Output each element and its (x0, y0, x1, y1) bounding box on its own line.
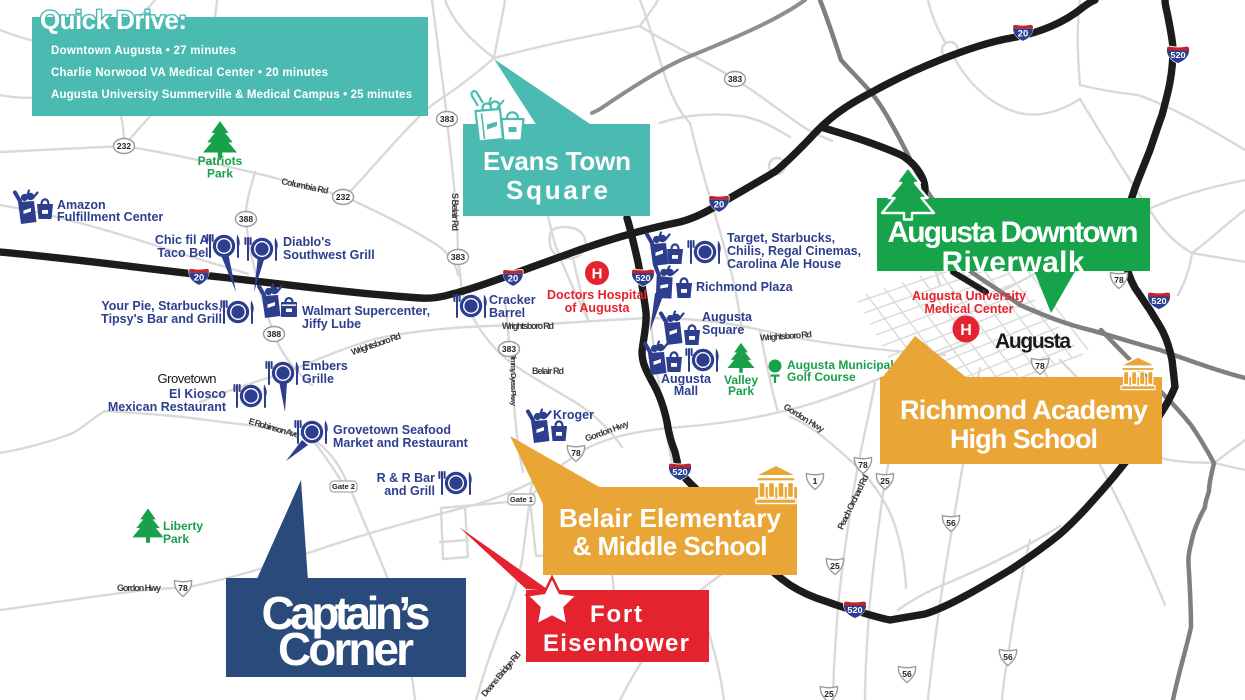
svg-text:Fulfillment Center: Fulfillment Center (57, 210, 163, 224)
svg-text:Doctors Hospital: Doctors Hospital (547, 288, 647, 302)
svg-text:Embers: Embers (302, 359, 348, 373)
svg-text:Richmond Academy: Richmond Academy (900, 395, 1148, 425)
svg-text:78: 78 (571, 448, 581, 458)
svg-text:Chic fil A,: Chic fil A, (155, 233, 212, 247)
svg-text:78: 78 (1035, 361, 1045, 371)
svg-text:Augusta: Augusta (702, 310, 753, 324)
svg-text:El Kiosco: El Kiosco (169, 387, 226, 401)
svg-text:Wrightsboro Rd: Wrightsboro Rd (502, 321, 554, 331)
svg-text:Target, Starbucks,: Target, Starbucks, (727, 231, 835, 245)
svg-text:Corner: Corner (278, 623, 414, 675)
svg-text:Your Pie, Starbucks,: Your Pie, Starbucks, (101, 299, 222, 313)
svg-text:Walmart Supercenter,: Walmart Supercenter, (302, 304, 430, 318)
svg-text:78: 78 (178, 583, 188, 593)
svg-text:Evans Town: Evans Town (483, 146, 631, 176)
svg-text:Taco Bell: Taco Bell (157, 246, 212, 260)
svg-text:Carolina Ale House: Carolina Ale House (727, 257, 841, 271)
svg-text:388: 388 (267, 329, 281, 339)
svg-text:56: 56 (902, 669, 912, 679)
svg-text:232: 232 (336, 192, 350, 202)
svg-text:Riverwalk: Riverwalk (942, 246, 1085, 279)
svg-text:Jiffy Lube: Jiffy Lube (302, 317, 361, 331)
svg-text:25: 25 (824, 689, 834, 699)
svg-text:Kroger: Kroger (553, 408, 594, 422)
svg-text:20: 20 (508, 273, 518, 284)
svg-text:Golf Course: Golf Course (787, 370, 856, 384)
svg-text:383: 383 (440, 114, 454, 124)
svg-text:20: 20 (1018, 28, 1028, 39)
svg-text:& Middle School: & Middle School (573, 531, 768, 561)
svg-text:Market and Restaurant: Market and Restaurant (333, 436, 469, 450)
svg-text:Gordon Hwy: Gordon Hwy (117, 583, 161, 593)
svg-text:Jimmy Dyess Pkwy: Jimmy Dyess Pkwy (509, 354, 518, 407)
svg-text:Mexican Restaurant: Mexican Restaurant (108, 400, 227, 414)
svg-text:520: 520 (672, 468, 687, 478)
svg-text:Downtown Augusta • 27 minutes: Downtown Augusta • 27 minutes (51, 45, 236, 57)
svg-text:Grovetown Seafood: Grovetown Seafood (333, 423, 451, 437)
svg-text:R & R Bar: R & R Bar (377, 471, 435, 485)
svg-text:S Belair Rd: S Belair Rd (450, 193, 460, 231)
svg-text:20: 20 (194, 272, 204, 283)
svg-text:520: 520 (847, 606, 862, 616)
svg-text:Gate 2: Gate 2 (332, 482, 355, 491)
svg-text:520: 520 (1151, 297, 1166, 307)
svg-text:383: 383 (502, 344, 516, 354)
svg-text:78: 78 (1114, 275, 1124, 285)
svg-text:232: 232 (117, 141, 131, 151)
svg-text:Grovetown: Grovetown (158, 371, 217, 386)
svg-text:Medical Center: Medical Center (925, 302, 1014, 316)
svg-text:Richmond Plaza: Richmond Plaza (696, 280, 794, 294)
svg-text:H: H (592, 266, 603, 283)
svg-text:Cracker: Cracker (489, 293, 536, 307)
svg-text:Belair Rd: Belair Rd (532, 366, 564, 376)
svg-text:Eisenhower: Eisenhower (543, 630, 689, 657)
svg-text:25: 25 (880, 476, 890, 486)
svg-text:56: 56 (1003, 652, 1013, 662)
svg-text:20: 20 (714, 199, 724, 210)
svg-text:Liberty: Liberty (163, 519, 203, 533)
svg-text:Augusta University Summerville: Augusta University Summerville & Medical… (51, 89, 412, 101)
svg-text:78: 78 (858, 460, 868, 470)
svg-text:Augusta: Augusta (995, 330, 1071, 353)
svg-text:Charlie Norwood VA Medical Cen: Charlie Norwood VA Medical Center • 20 m… (51, 67, 328, 79)
svg-text:Park: Park (207, 167, 233, 181)
svg-text:520: 520 (1170, 51, 1185, 61)
svg-text:Grille: Grille (302, 372, 334, 386)
svg-text:H: H (960, 322, 972, 339)
svg-text:Park: Park (163, 532, 189, 546)
svg-text:Fort: Fort (590, 601, 642, 628)
svg-text:Mall: Mall (674, 384, 698, 398)
svg-text:Augusta Downtown: Augusta Downtown (888, 216, 1139, 249)
svg-text:Diablo's: Diablo's (283, 235, 331, 249)
svg-text:Square: Square (506, 175, 608, 205)
svg-text:and Grill: and Grill (384, 484, 435, 498)
svg-text:Chilis, Regal Cinemas,: Chilis, Regal Cinemas, (727, 244, 861, 258)
svg-text:25: 25 (830, 561, 840, 571)
svg-text:Belair Elementary: Belair Elementary (559, 503, 782, 533)
svg-text:Quick Drive:: Quick Drive: (40, 5, 187, 35)
svg-text:388: 388 (239, 214, 253, 224)
svg-text:Gate 1: Gate 1 (510, 495, 533, 504)
svg-text:Park: Park (728, 384, 754, 398)
svg-text:High School: High School (950, 424, 1098, 454)
svg-text:383: 383 (728, 74, 742, 84)
svg-text:Barrel: Barrel (489, 306, 525, 320)
svg-text:56: 56 (946, 518, 956, 528)
svg-text:Tipsy's Bar and Grill: Tipsy's Bar and Grill (101, 312, 222, 326)
svg-text:Square: Square (702, 323, 744, 337)
svg-text:520: 520 (635, 274, 650, 284)
svg-text:383: 383 (451, 252, 465, 262)
svg-text:Augusta University: Augusta University (912, 289, 1026, 303)
svg-text:of Augusta: of Augusta (565, 301, 631, 315)
svg-text:1: 1 (813, 476, 818, 486)
svg-text:Southwest Grill: Southwest Grill (283, 248, 375, 262)
